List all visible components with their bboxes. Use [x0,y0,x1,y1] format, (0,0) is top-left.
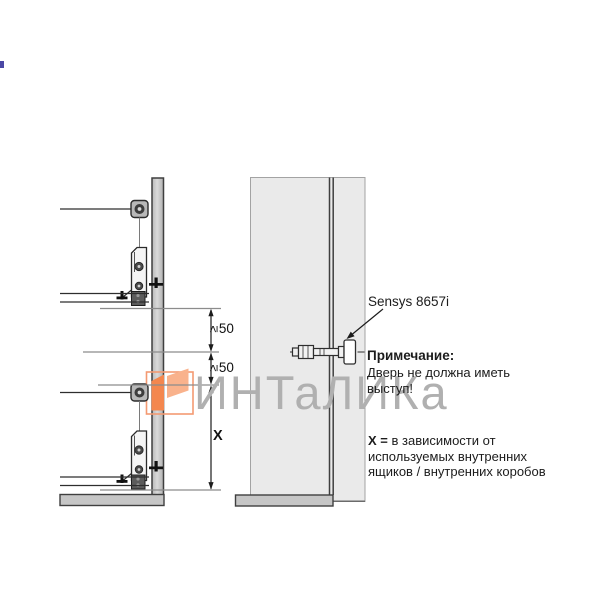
dimension-label-50-top: ≥50 [210,321,234,336]
drawer-runner-assembly-top [60,201,163,306]
dimension-label-50-bottom: ≥50 [210,360,234,375]
x-explanation-line: X = в зависимости от [368,433,546,449]
cabinet-bottom-shelf-section [60,495,164,506]
side-panel-strip [152,178,164,505]
geq-symbol: ≥ [206,326,220,333]
note-line: Дверь не должна иметь [367,365,510,382]
x-explanation-line: используемых внутренних [368,449,546,465]
note-block: Примечание: Дверь не должна иметь выступ… [367,348,510,398]
instruction-diagram-page: ИНТаЛИКа ≥50 ≥50 X Sensys 8657i Примечан… [0,0,600,600]
x-explanation-line: ящиков / внутренних коробов [368,464,546,480]
note-line: выступ! [367,381,510,398]
cabinet-bottom-shelf-front [236,495,334,506]
dimension-label-x: X [213,428,223,444]
note-title: Примечание: [367,348,510,365]
cabinet-side-section [60,178,164,506]
hinge-mounting-plate [344,340,356,364]
geq-symbol: ≥ [206,365,220,372]
x-explanation-block: X = в зависимости от используемых внутре… [368,433,546,480]
drawer-runner-assembly-bottom [60,384,163,489]
x-prefix: X = [368,433,388,448]
technical-drawing [0,0,600,600]
hinge-product-label: Sensys 8657i [368,294,449,309]
